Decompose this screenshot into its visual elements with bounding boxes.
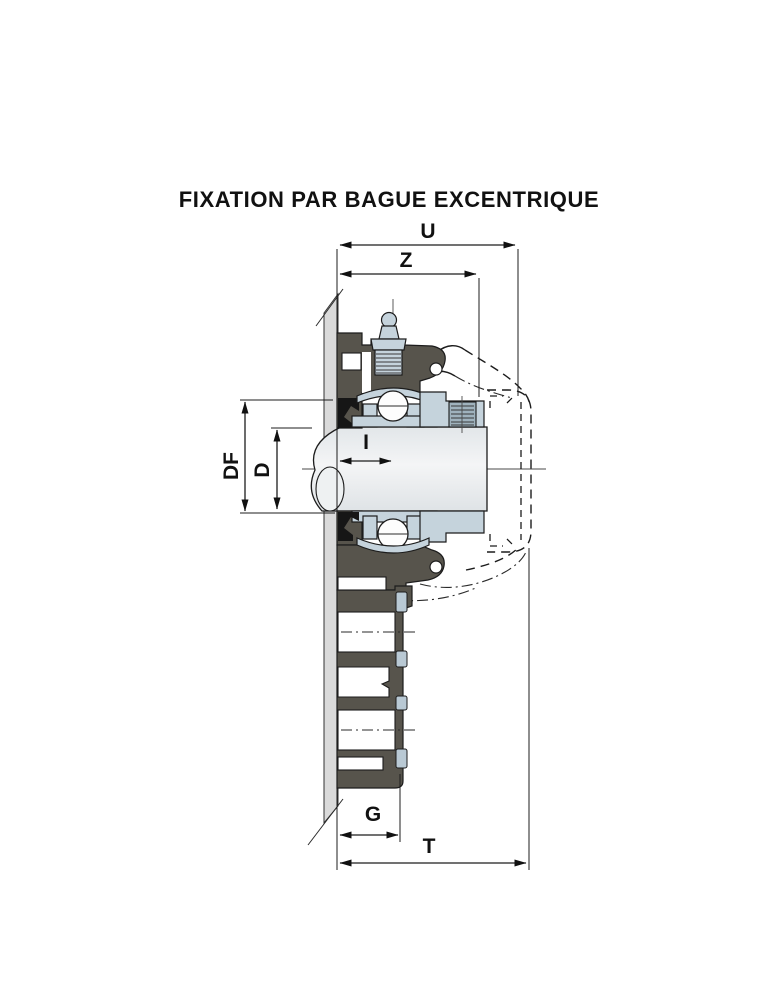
grease-fitting-tip — [382, 313, 397, 328]
dimension-df: DF — [220, 402, 245, 511]
drawing-page: FIXATION PAR BAGUE EXCENTRIQUE — [0, 0, 771, 1000]
flange-clip-4 — [396, 749, 407, 768]
flange-cavity-middle — [338, 667, 389, 697]
page-title: FIXATION PAR BAGUE EXCENTRIQUE — [179, 187, 600, 212]
housing-lug-ring-lower — [430, 561, 442, 573]
dimension-t: T — [340, 835, 526, 863]
dimension-label-u: U — [420, 220, 435, 243]
dimension-label-i: I — [363, 431, 369, 454]
wall-strip — [324, 294, 338, 823]
collar-contour-dashdot-top — [455, 376, 512, 398]
flange-clip-3 — [396, 696, 407, 710]
shaft-break-lens — [316, 467, 344, 511]
housing-contour-dashed-top — [465, 350, 530, 406]
grease-fitting-neck — [379, 326, 399, 339]
dimension-u: U — [340, 220, 515, 245]
collar-groove-hook-bottom — [490, 534, 515, 547]
dimension-label-df: DF — [220, 452, 243, 480]
bearing-technical-drawing: FIXATION PAR BAGUE EXCENTRIQUE — [0, 0, 771, 1000]
flange-slot-top — [338, 577, 386, 590]
upper-bearing-assembly — [337, 313, 484, 434]
dimension-g: G — [340, 803, 398, 835]
dimension-z: Z — [340, 249, 476, 274]
flange-clip-1 — [396, 592, 407, 612]
housing-lug-ring-upper — [430, 363, 442, 375]
housing-gap — [362, 352, 371, 393]
collar-phantom-outer — [487, 390, 531, 552]
shaft — [311, 427, 487, 511]
housing-slot-upper — [342, 353, 361, 370]
dimension-d: D — [251, 430, 277, 509]
inner-ring-shoulder-left-lower — [363, 516, 377, 539]
dimension-label-t: T — [423, 835, 436, 858]
grease-fitting — [371, 313, 406, 376]
dimension-label-z: Z — [400, 249, 413, 272]
flange-cross-section — [337, 577, 416, 788]
flange-clip-2 — [396, 651, 407, 667]
dimension-label-d: D — [251, 462, 274, 477]
dimension-label-g: G — [365, 803, 381, 826]
collar-groove-hook-top — [490, 395, 515, 408]
grease-fitting-hex — [371, 339, 406, 350]
flange-slot-bottom — [338, 757, 383, 770]
